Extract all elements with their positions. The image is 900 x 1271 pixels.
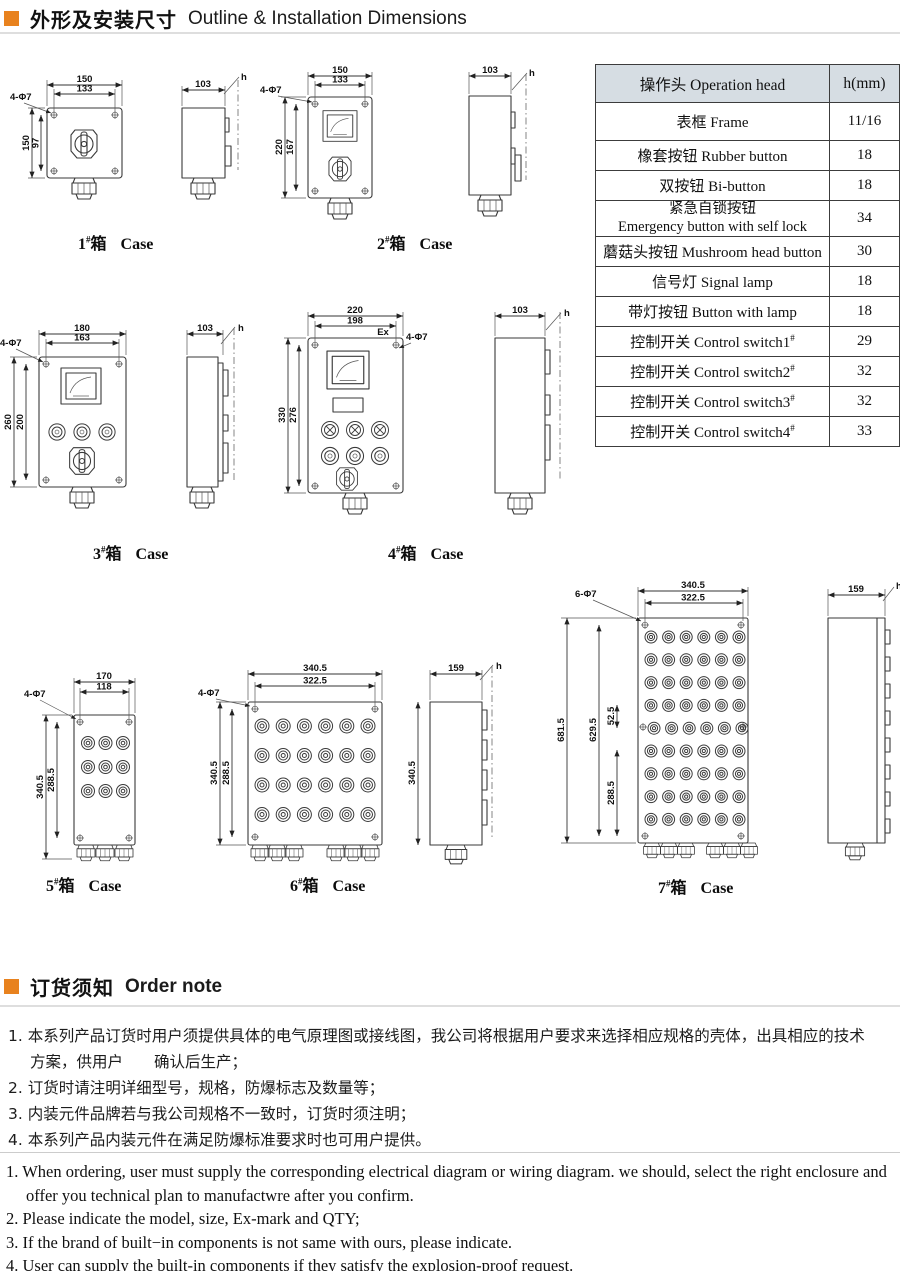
case5-front-view: [74, 715, 135, 861]
row-h: 32: [830, 387, 900, 417]
case3-dimensions: 180 163 260 200 4-Φ7: [0, 323, 126, 487]
case7-label: 7#箱Case: [658, 874, 733, 898]
orange-bullet-icon: [4, 11, 19, 26]
cable-gland-icon: [72, 178, 96, 199]
push-button-icon: [321, 447, 338, 464]
note-line: 1. 本系列产品订货时用户须提供具体的电气原理图或接线图，我公司将根据用户要求来…: [8, 1023, 896, 1049]
dim-text: 97: [31, 138, 42, 149]
dim-text: 103: [512, 305, 528, 316]
push-button-icon: [99, 424, 115, 440]
case2-dimensions: 150 133 220 167 4-Φ7: [260, 65, 372, 198]
note-line: 3. 内装元件品牌若与我公司规格不一致时，订货时须注明；: [8, 1101, 896, 1127]
meter-frame-icon: [327, 351, 369, 389]
button-grid: [82, 737, 130, 798]
holes-callout: 4-Φ7: [0, 338, 22, 349]
case7-front-view: [638, 618, 757, 858]
row-h: 18: [830, 171, 900, 201]
ex-mark: Ex: [377, 327, 389, 338]
cable-gland-icon: [445, 845, 467, 864]
case4-drawing: 220 198 330 276 Ex 4-Φ7 103 h: [280, 300, 580, 540]
note-line: 3. If the brand of built−in components i…: [6, 1231, 898, 1255]
case4-side-view: 103 h: [495, 305, 570, 514]
row-name: 控制开关 Control switch3#: [596, 387, 830, 417]
selector-button-icon: [347, 422, 364, 439]
case6-drawing: 340.5 322.5 340.5 288.5 4-Φ7 159 340.5 h: [190, 640, 510, 900]
operation-head-table: 操作头 Operation head h(mm) 表框 Frame11/16 橡…: [595, 64, 900, 447]
push-button-icon: [74, 424, 90, 440]
table-row: 双按钮 Bi-button18: [596, 171, 900, 201]
case4-dimensions: 220 198 330 276 Ex 4-Φ7: [277, 305, 428, 493]
dim-text: 159: [848, 584, 864, 595]
dim-text: 133: [332, 75, 348, 86]
row-h: 30: [830, 237, 900, 267]
cable-gland-icon: [478, 195, 502, 216]
case3-drawing: 180 163 260 200 4-Φ7 103 h: [0, 310, 280, 570]
case7-side-view: 159 h: [828, 581, 900, 860]
dim-text: 103: [197, 323, 213, 334]
case1-dimensions: 150 133 150 97 4-Φ7: [10, 74, 122, 178]
case5-drawing: 170 118 340.5 288.5 4-Φ7: [10, 640, 190, 900]
case6-front-view: [248, 702, 382, 861]
dim-text: h: [564, 308, 570, 319]
dim-text: 159: [448, 663, 464, 674]
divider: [0, 32, 900, 34]
dim-text: 103: [195, 79, 211, 90]
cable-gland-icon: [115, 845, 133, 861]
case1-side-view: 103 h: [182, 72, 247, 199]
row-h: 18: [830, 297, 900, 327]
nameplate: [333, 398, 363, 412]
case5-dimensions: 170 118 340.5 288.5 4-Φ7: [24, 671, 135, 859]
row-name: 双按钮 Bi-button: [596, 171, 830, 201]
case2-front-view: [308, 97, 372, 219]
cable-gland-icon: [285, 845, 303, 861]
note-line: 4. User can supply the built-in componen…: [6, 1254, 898, 1271]
dim-text: 288.5: [606, 780, 617, 804]
dim-text: 340.5: [303, 663, 327, 674]
meter-frame-icon: [61, 368, 101, 404]
dim-text: 681.5: [556, 717, 567, 741]
dim-text: 260: [3, 414, 14, 430]
table-row: 表框 Frame11/16: [596, 103, 900, 141]
row-name: 橡套按钮 Rubber button: [596, 141, 830, 171]
case4-label: 4#箱Case: [388, 540, 463, 564]
dim-text: 118: [96, 682, 111, 693]
orange-bullet-icon: [4, 979, 19, 994]
note-line: 1. When ordering, user must supply the c…: [6, 1160, 898, 1184]
note-line: 2. Please indicate the model, size, Ex-m…: [6, 1207, 898, 1231]
order-title-zh: 订货须知: [30, 972, 114, 1001]
divider: [0, 1005, 900, 1007]
dim-text: 340.5: [681, 580, 705, 591]
row-name: 控制开关 Control switch4#: [596, 417, 830, 447]
cable-gland-icon: [741, 843, 758, 858]
table-row: 控制开关 Control switch4#33: [596, 417, 900, 447]
cable-gland-icon: [678, 843, 695, 858]
table-row: 带灯按钮 Button with lamp18: [596, 297, 900, 327]
holes-callout: 4-Φ7: [24, 689, 46, 700]
case1-front-view: [47, 108, 122, 199]
row-name: 蘑菇头按钮 Mushroom head button: [596, 237, 830, 267]
dim-text: 200: [15, 414, 26, 430]
selector-button-icon: [372, 422, 389, 439]
dim-text: 288.5: [46, 767, 57, 791]
dim-text: h: [496, 661, 502, 672]
row-h: 29: [830, 327, 900, 357]
cable-gland-icon: [508, 493, 532, 514]
holes-callout: 4-Φ7: [406, 332, 428, 343]
cable-gland-icon: [251, 845, 269, 861]
holes-callout: 6-Φ7: [575, 589, 597, 600]
row-h: 33: [830, 417, 900, 447]
row-h: 18: [830, 141, 900, 171]
rotary-switch-icon: [329, 157, 351, 181]
dim-text: 340.5: [209, 760, 220, 784]
cable-gland-icon: [328, 198, 352, 219]
row-name: 控制开关 Control switch2#: [596, 357, 830, 387]
dim-text: 163: [74, 333, 90, 344]
note-line: offer you technical plan to manufactwre …: [6, 1184, 898, 1208]
selector-button-icon: [322, 422, 339, 439]
order-title-en: Order note: [125, 976, 222, 998]
table-row: 信号灯 Signal lamp18: [596, 267, 900, 297]
table-header-row: 操作头 Operation head h(mm): [596, 65, 900, 103]
dim-text: 133: [77, 84, 93, 95]
dim-text: 288.5: [221, 760, 232, 784]
case4-front-view: [308, 338, 403, 514]
cable-gland-icon: [644, 843, 661, 858]
dim-text: 220: [347, 305, 363, 316]
table-row: 控制开关 Control switch2#32: [596, 357, 900, 387]
dim-text: 103: [482, 65, 498, 76]
push-button-icon: [49, 424, 65, 440]
note-line: 4. 本系列产品内装元件在满足防爆标准要求时也可用户提供。: [8, 1127, 896, 1153]
dim-text: 322.5: [681, 593, 705, 604]
button-grid: [255, 719, 375, 822]
case6-label: 6#箱Case: [290, 872, 365, 896]
row-h: 34: [830, 201, 900, 237]
dim-text: 629.5: [588, 717, 599, 741]
dim-text: 340.5: [35, 774, 46, 798]
cable-gland-icon: [70, 487, 94, 508]
cable-gland-icon: [190, 487, 214, 508]
cable-gland-icon: [77, 845, 95, 861]
outline-title-en: Outline & Installation Dimensions: [188, 8, 467, 30]
case3-side-view: 103 h: [187, 323, 244, 508]
case2-side-view: 103 h: [469, 65, 535, 216]
cable-gland-icon: [343, 493, 367, 514]
row-name: 带灯按钮 Button with lamp: [596, 297, 830, 327]
cable-gland-icon: [661, 843, 678, 858]
divider: [0, 1152, 900, 1153]
col-h-mm: h(mm): [830, 65, 900, 103]
row-name: 表框 Frame: [596, 103, 830, 141]
cable-gland-icon: [344, 845, 362, 861]
order-notes-english: 1. When ordering, user must supply the c…: [6, 1160, 898, 1271]
row-h: 11/16: [830, 103, 900, 141]
cable-gland-icon: [724, 843, 741, 858]
table-row: 控制开关 Control switch3#32: [596, 387, 900, 417]
cable-gland-icon: [96, 845, 114, 861]
dim-text: 52.5: [606, 706, 617, 725]
dim-text: h: [896, 581, 900, 592]
case5-label: 5#箱Case: [46, 872, 121, 896]
table-row: 控制开关 Control switch1#29: [596, 327, 900, 357]
dim-text: 330: [277, 407, 288, 423]
col-operation-head: 操作头 Operation head: [596, 65, 830, 103]
dim-text: 276: [288, 407, 299, 423]
table-row: 橡套按钮 Rubber button18: [596, 141, 900, 171]
table-row: 紧急自锁按钮 Emergency button with self lock34: [596, 201, 900, 237]
row-h: 32: [830, 357, 900, 387]
dim-text: h: [238, 323, 244, 334]
case3-label: 3#箱Case: [93, 540, 168, 564]
dim-text: 340.5: [407, 760, 418, 784]
dim-text: 322.5: [303, 676, 327, 687]
cable-gland-icon: [327, 845, 345, 861]
row-h: 18: [830, 267, 900, 297]
dim-text: 198: [347, 316, 363, 327]
holes-callout: 4-Φ7: [260, 85, 282, 96]
note-line: 方案，供用户 确认后生产；: [8, 1049, 896, 1075]
cable-gland-icon: [361, 845, 379, 861]
case6-side-view: 159 340.5 h: [407, 661, 502, 864]
case3-front-view: [39, 357, 126, 508]
catalog-page: 外形及安装尺寸 Outline & Installation Dimension…: [0, 0, 900, 1271]
holes-callout: 4-Φ7: [10, 92, 32, 103]
case2-label: 2#箱Case: [377, 230, 452, 254]
button-grid: [645, 631, 748, 825]
dim-text: 220: [274, 139, 285, 155]
rotary-switch-icon: [70, 448, 95, 475]
row-name: 控制开关 Control switch1#: [596, 327, 830, 357]
dim-text: h: [529, 68, 535, 79]
row-name: 信号灯 Signal lamp: [596, 267, 830, 297]
push-button-icon: [371, 447, 388, 464]
meter-frame-icon: [323, 111, 357, 142]
dim-text: 167: [285, 139, 296, 155]
cable-gland-icon: [845, 843, 864, 860]
push-button-icon: [346, 447, 363, 464]
case7-drawing: 340.5 322.5 681.5 629.5 52.5 288.5 6-Φ7: [555, 575, 900, 905]
rotary-switch-icon: [71, 130, 97, 158]
order-note-section-header: 订货须知 Order note: [4, 972, 222, 1001]
cable-gland-icon: [268, 845, 286, 861]
note-line: 2. 订货时请注明详细型号，规格，防爆标志及数量等；: [8, 1075, 896, 1101]
rotary-switch-icon: [337, 468, 358, 490]
cable-gland-icon: [191, 178, 215, 199]
order-notes-chinese: 1. 本系列产品订货时用户须提供具体的电气原理图或接线图，我公司将根据用户要求来…: [8, 1023, 896, 1153]
case1-label: 1#箱Case: [78, 230, 153, 254]
outline-section-header: 外形及安装尺寸 Outline & Installation Dimension…: [4, 4, 467, 33]
table-row: 蘑菇头按钮 Mushroom head button30: [596, 237, 900, 267]
holes-callout: 4-Φ7: [198, 688, 220, 699]
outline-title-zh: 外形及安装尺寸: [30, 4, 177, 33]
cable-gland-icon: [707, 843, 724, 858]
dim-text: 170: [96, 671, 112, 682]
row-name: 紧急自锁按钮 Emergency button with self lock: [596, 201, 830, 237]
